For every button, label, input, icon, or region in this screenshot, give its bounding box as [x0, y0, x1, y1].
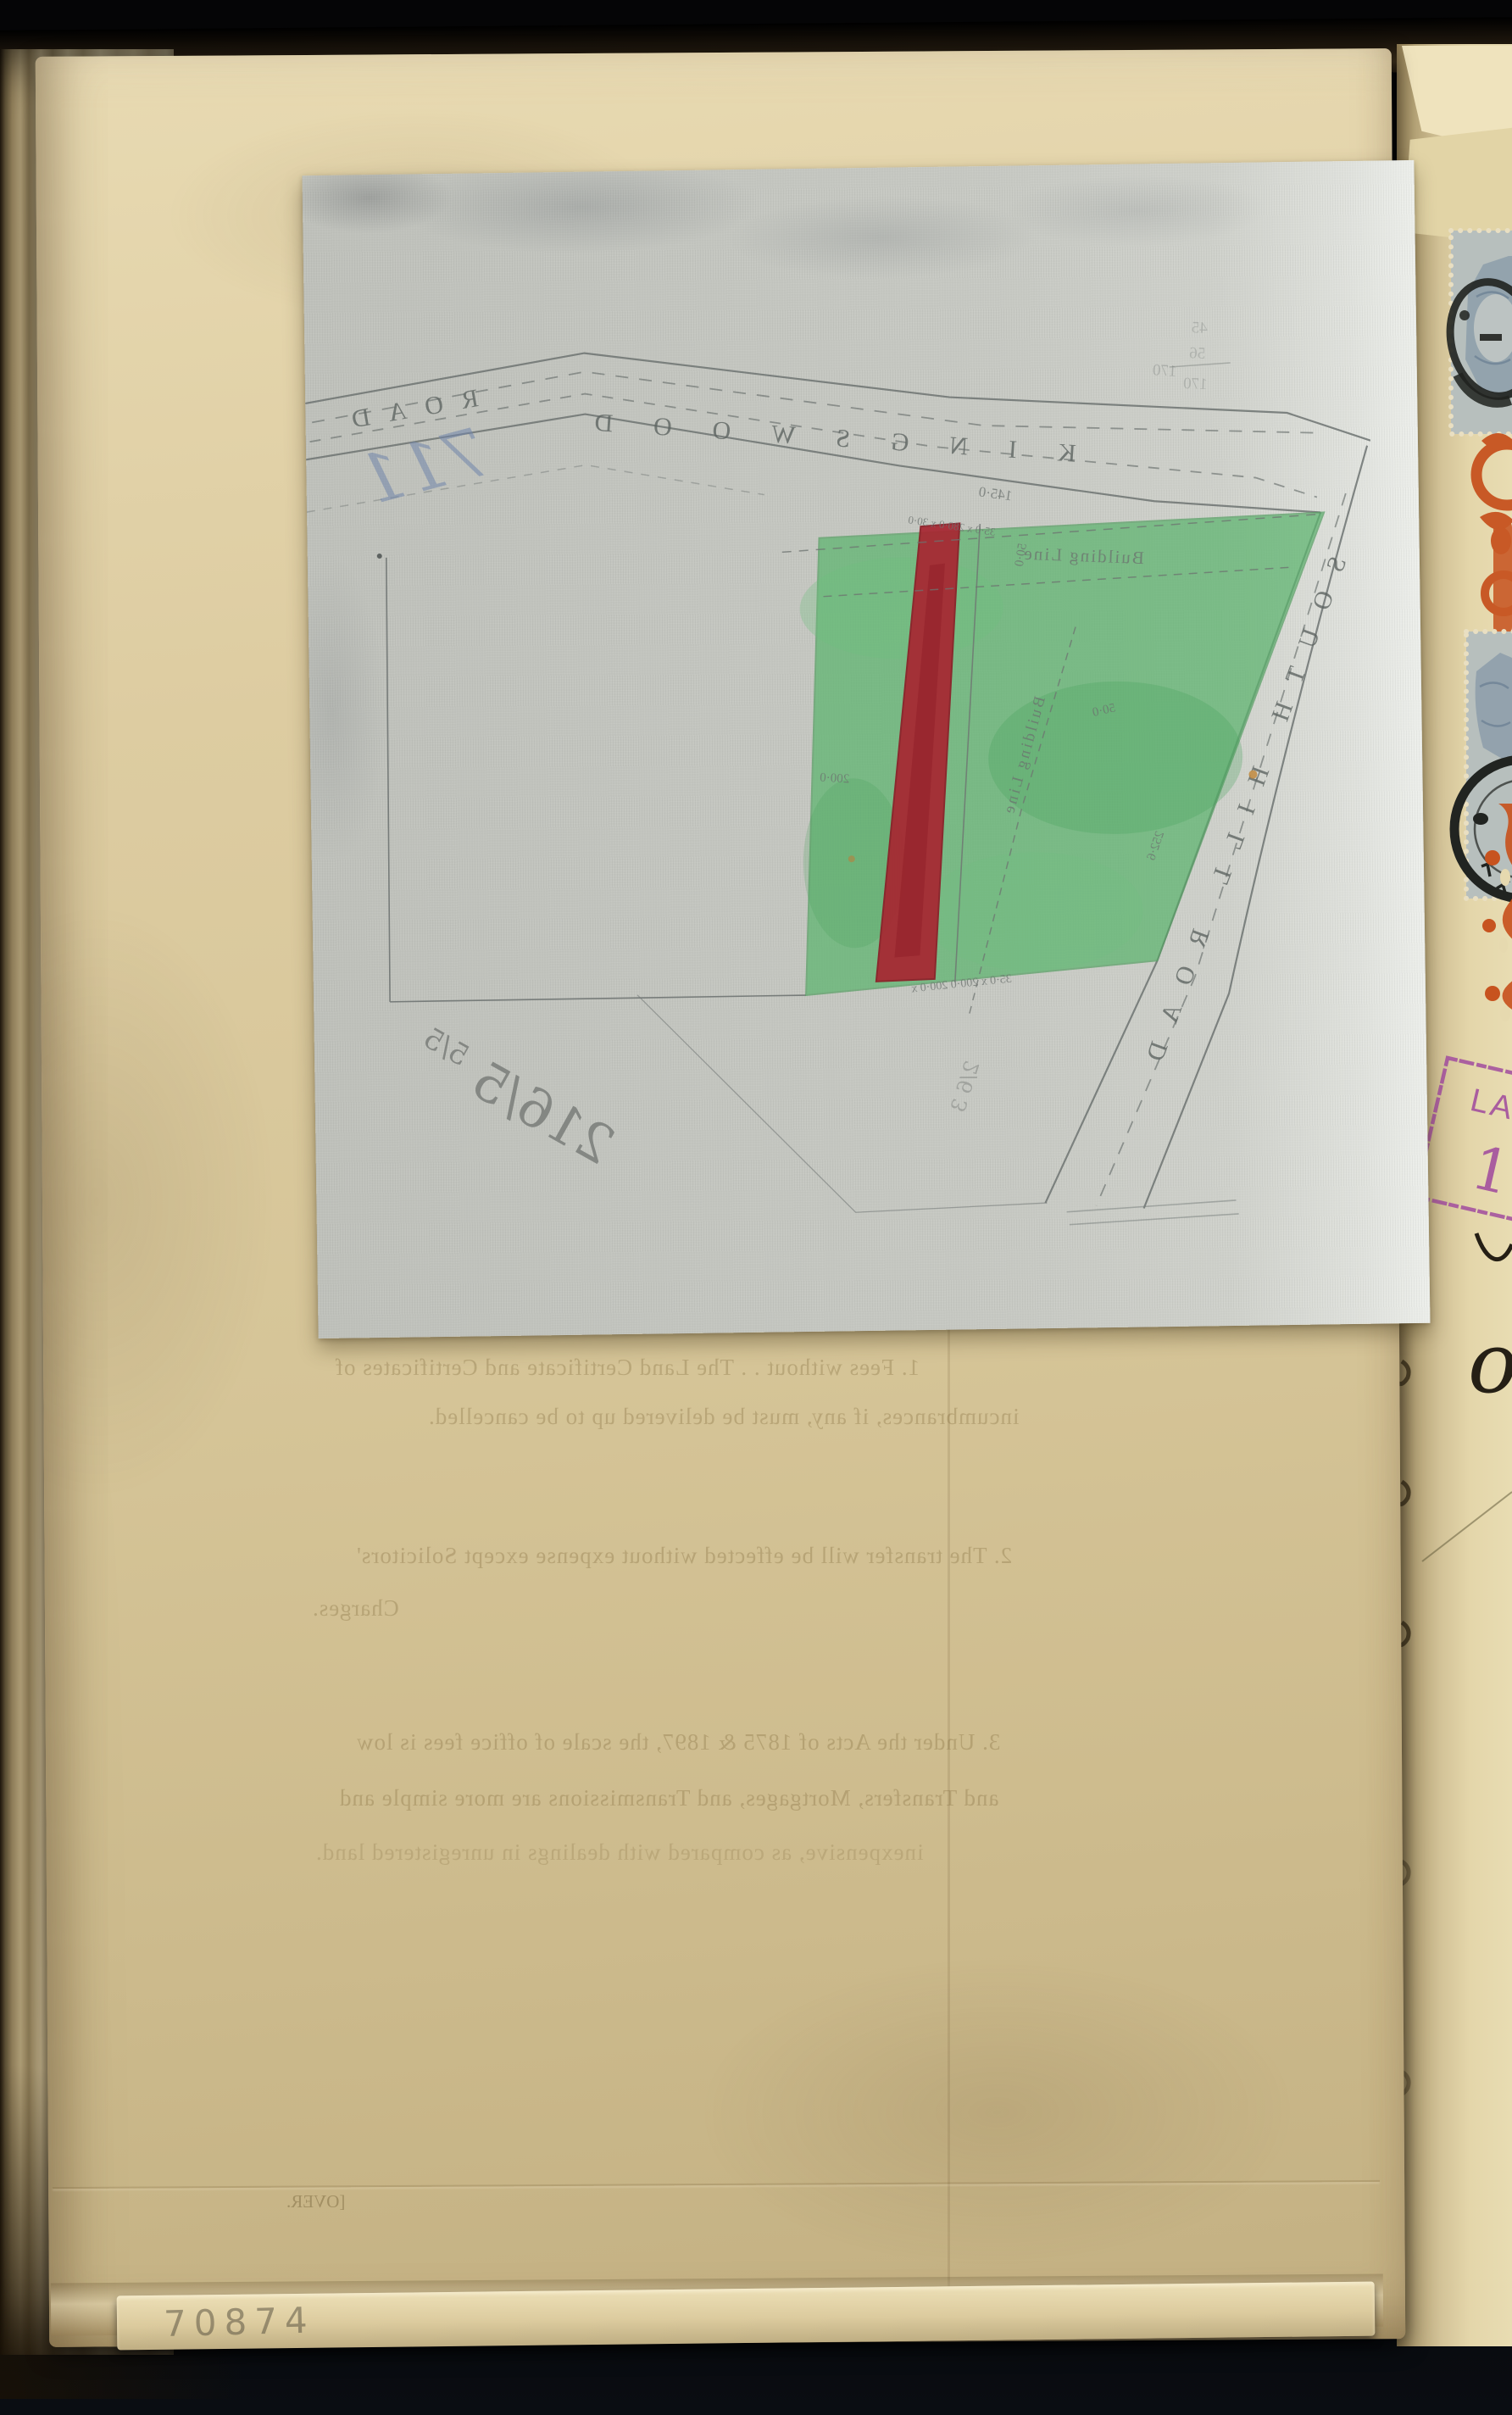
pencil-calc: 45 56 170 — [1169, 318, 1231, 393]
svg-text:35·0 x 200·0 200·0 x: 35·0 x 200·0 200·0 x — [911, 972, 1013, 995]
measurement-145: 145·0 — [978, 483, 1014, 504]
show-through-line: inexpensive, as compared with dealings i… — [315, 1839, 924, 1866]
building-lines-dashed — [781, 514, 1327, 1021]
measurement-bottom-row: 35·0 x 200·0 200·0 x — [911, 972, 1013, 995]
svg-text:170: 170 — [1152, 361, 1177, 381]
plot-green — [798, 512, 1331, 995]
blue-pencil-mark: 711 — [352, 412, 497, 521]
measurement-200: 200·0 — [820, 771, 850, 787]
scanned-register-page: LAN 1 of 1. Fees without . . The Land Ce… — [0, 0, 1512, 2415]
rust-flecks — [847, 771, 1258, 863]
plan-drawing: KINGSWOOD ROAD SOUTH HILL ROAD Building … — [302, 161, 1382, 1337]
south-hill-label-text: SOUTH HILL ROAD — [1133, 553, 1352, 1085]
show-through-line: 1. Fees without . . The Land Certificate… — [335, 1355, 920, 1381]
purple-stamp-numeral: 1 — [1465, 1132, 1512, 1209]
building-line-label-2: Building Line — [1000, 694, 1049, 818]
show-through-line: 3. Under the Acts of 1875 & 1897, the sc… — [356, 1729, 1000, 1756]
kingswood-road-label: KINGSWOOD — [553, 406, 1077, 468]
ink-pen-stroke — [1476, 1233, 1512, 1260]
south-hill-road-label: SOUTH HILL ROAD — [1133, 553, 1352, 1085]
measurement-frontage: 35·0 x 280·0 x 30·0 — [907, 513, 996, 538]
south-hill-road — [1035, 446, 1378, 1225]
svg-text:45: 45 — [1191, 319, 1208, 337]
svg-text:Building Line: Building Line — [1022, 543, 1144, 568]
purple-rubber-stamp: LAN 1 — [1415, 1058, 1512, 1226]
svg-text:56: 56 — [1189, 344, 1206, 363]
road-word-text: ROAD — [331, 384, 481, 437]
pencil-diagonal-line — [1422, 1492, 1512, 1561]
pencil-handwriting-mid: 2/6 3 — [946, 1058, 984, 1115]
measurement-252: 252·6 — [1144, 830, 1167, 863]
svg-text:145·0: 145·0 — [978, 483, 1014, 504]
svg-text:50·0: 50·0 — [1091, 701, 1116, 720]
kingswood-road — [302, 342, 1371, 527]
measurement-50b: 50·0 — [1091, 701, 1116, 720]
svg-text:35·0 x 280·0 x 30·0: 35·0 x 280·0 x 30·0 — [907, 513, 996, 538]
purple-stamp-text: LAN — [1467, 1082, 1512, 1133]
plan-linen-map: KINGSWOOD ROAD SOUTH HILL ROAD Building … — [302, 160, 1430, 1338]
svg-text:50·0: 50·0 — [1013, 543, 1030, 568]
show-through-over-mark: [OVER. — [286, 2191, 345, 2212]
building-line-label-1: Building Line — [1022, 543, 1144, 568]
pencil-handwriting-large: 216/5 — [462, 1049, 625, 1177]
pencil-folio-number: 70874 — [163, 2300, 315, 2345]
kingswood-label-text: KINGSWOOD — [553, 406, 1077, 468]
plot-red-strip — [870, 523, 966, 981]
parcel-boundary-lines — [377, 544, 1048, 1219]
road-label-road-word: ROAD — [331, 384, 481, 437]
svg-text:711: 711 — [352, 412, 497, 521]
plot-divider-line — [948, 524, 987, 982]
svg-text:5/5: 5/5 — [418, 1021, 475, 1074]
orange-stamp-fragment-top — [1476, 433, 1512, 636]
pencil-handwriting-small: 5/5 — [418, 1021, 475, 1074]
svg-text:200·0: 200·0 — [820, 771, 850, 787]
postage-stamp-top — [1440, 231, 1512, 434]
measurement-50a: 50·0 — [1013, 543, 1030, 568]
svg-text:170: 170 — [1183, 375, 1208, 393]
show-through-line: and Transfers, Mortgages, and Transmissi… — [339, 1785, 998, 1811]
svg-text:Building Line: Building Line — [1000, 694, 1049, 818]
show-through-line: Charges. — [312, 1595, 399, 1622]
show-through-line: incumbrances, if any, must be delivered … — [428, 1404, 1020, 1430]
svg-text:252·6: 252·6 — [1144, 830, 1167, 863]
page-crease-vertical — [948, 1322, 950, 2323]
svg-text:216/5: 216/5 — [462, 1049, 625, 1177]
pencil-170-upper: 170 — [1152, 361, 1177, 381]
svg-text:2/6 3: 2/6 3 — [946, 1058, 984, 1115]
ink-handwriting-word: of — [1468, 1316, 1512, 1412]
show-through-line: 2. The transfer will be effected without… — [356, 1543, 1012, 1569]
